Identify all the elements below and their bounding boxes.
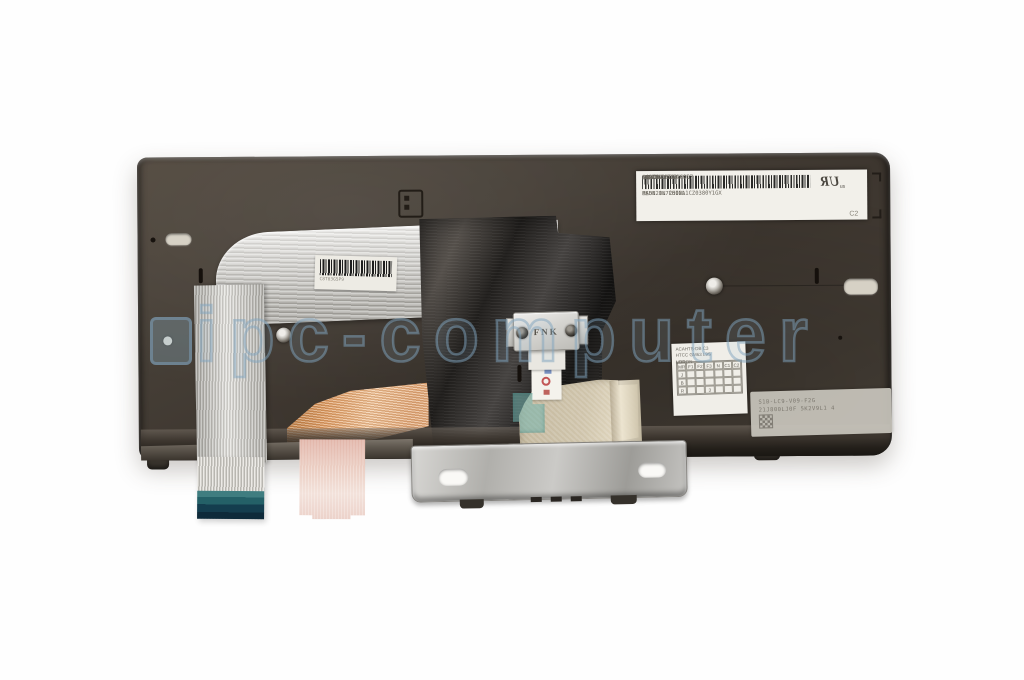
barcode (320, 259, 392, 277)
qc-grid: MRF1F2F3NC1C2JBR3 (676, 360, 743, 396)
qc-cell (714, 385, 723, 393)
mount-slot-top-left (165, 233, 191, 245)
fnk-label: FNK (534, 326, 559, 337)
qc-cell (723, 385, 732, 393)
bracket-tab-right (611, 495, 637, 505)
fnk-screw-right (565, 325, 577, 337)
screw-head-small (163, 336, 172, 345)
product-photo: C8T03G5P9 FNK (0, 0, 1024, 680)
qc-grid-label: ACAHTS-DB C3 HTCC GM63 L9S VDR L/TRON MR… (671, 341, 747, 415)
corner-code: C2 (849, 210, 889, 453)
fnk-white-strip (528, 350, 565, 370)
screw-head-right (706, 278, 723, 295)
bracket-slot-left (438, 468, 468, 486)
qc-col-right: L/TRON (676, 359, 693, 365)
pink-ribbon-tail (299, 439, 365, 519)
cable-barcode-sticker: C8T03G5P9 (314, 255, 397, 291)
qc-cell (733, 385, 742, 393)
etched-corner-mark-bottom (872, 209, 881, 218)
tan-tape-fold (609, 380, 642, 445)
keyboard-back: C8T03G5P9 FNK (137, 152, 892, 460)
part-number-label: P/NO SN20L72602 S/NO 886107 REV:B 0E FRU… (636, 170, 867, 222)
bracket-notch (571, 496, 582, 501)
teal-connector-end (197, 491, 264, 519)
silver-ribbon-cable-vertical (194, 284, 267, 463)
bracket-tab-left (460, 499, 484, 509)
latch-slot-left (199, 268, 203, 283)
latch-slot-center (517, 365, 521, 382)
qc-cell: R (678, 386, 687, 394)
etched-corner-mark-top (872, 172, 881, 181)
datamatrix-code (759, 414, 773, 428)
latch-slot-right (815, 268, 819, 284)
etched-guide-line (723, 285, 845, 287)
fnk-screw-left (516, 327, 528, 339)
screw-head-left (276, 328, 291, 343)
qc-cell: 3 (705, 385, 714, 393)
model-value: MODEL FU2060L (642, 175, 690, 183)
mounting-bracket (411, 440, 688, 503)
alignment-hole (151, 238, 156, 243)
ribbon-red-mark (544, 390, 550, 395)
qc-cell (687, 386, 696, 394)
bracket-slot-right (638, 462, 666, 478)
alignment-hole-right (838, 336, 842, 340)
etched-rectangle-mark (398, 190, 423, 218)
ul-recognized-icon: URus (820, 173, 845, 191)
origin-text: MADE IN CHINA (642, 190, 685, 196)
fnk-bracket-wing-right (578, 315, 588, 344)
bracket-notch (531, 497, 542, 502)
ribbon-red-ring (541, 377, 550, 386)
bracket-notch (551, 497, 562, 502)
silver-ribbon-cable-tail (197, 457, 264, 519)
qc-cell (696, 386, 705, 394)
barcode-code: C8T03G5P9 (319, 277, 391, 284)
